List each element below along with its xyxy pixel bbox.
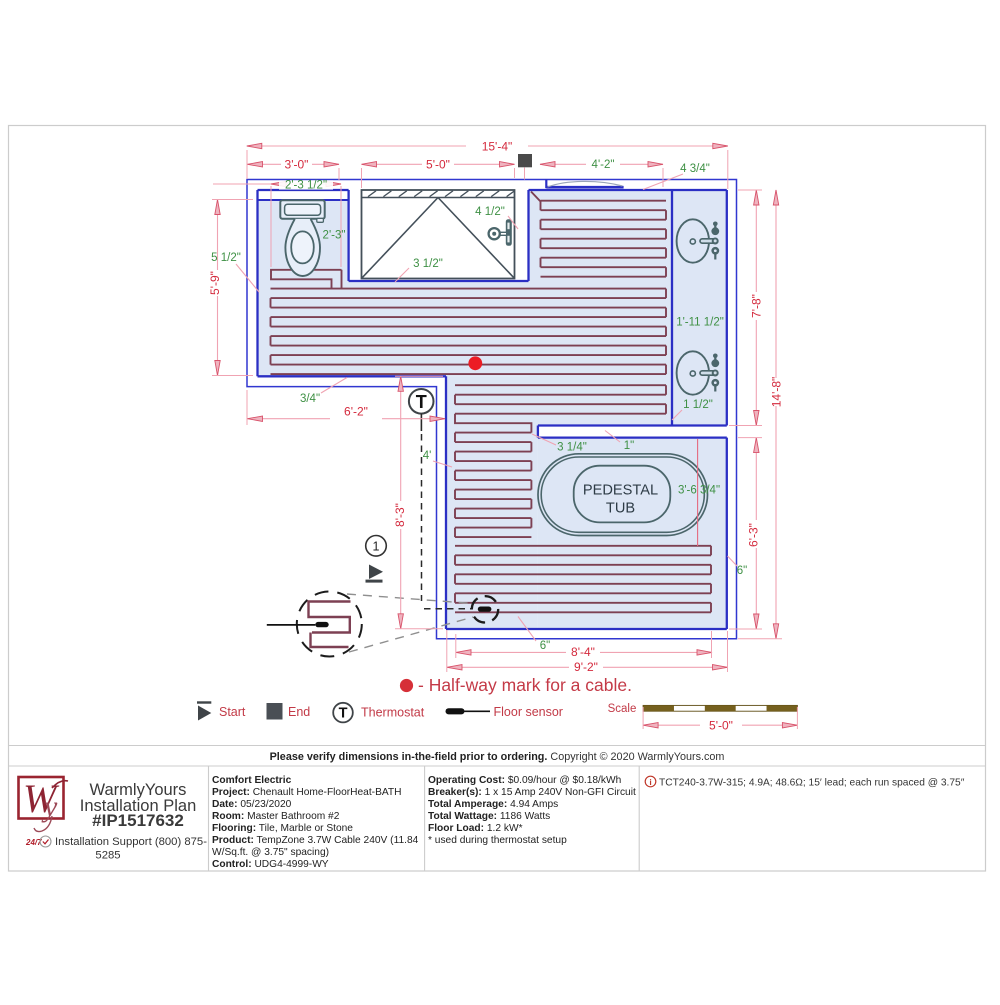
svg-text:3 1/2": 3 1/2" [413,258,443,270]
svg-text:1: 1 [373,540,380,554]
svg-text:6": 6" [540,640,550,652]
svg-text:5'-0": 5'-0" [426,157,450,171]
svg-text:Floor sensor: Floor sensor [494,705,563,719]
svg-text:3 1/4": 3 1/4" [557,442,587,454]
svg-text:W/Sq.ft. @ 3.75" spacing): W/Sq.ft. @ 3.75" spacing) [212,847,329,858]
svg-text:Control: UDG4-4999-WY: Control: UDG4-4999-WY [212,859,329,870]
svg-text:8'-3": 8'-3" [393,503,407,527]
svg-text:1": 1" [624,440,634,452]
svg-text:Total Wattage: 1186 Watts: Total Wattage: 1186 Watts [428,811,550,822]
svg-text:6'-2": 6'-2" [344,405,368,419]
svg-text:Operating Cost: $0.09/hour @ $: Operating Cost: $0.09/hour @ $0.18/kWh [428,775,621,786]
svg-text:4 1/2": 4 1/2" [475,206,505,218]
svg-text:Flooring: Tile, Marble or Ston: Flooring: Tile, Marble or Stone [212,823,353,834]
svg-text:Please verify dimensions in-th: Please verify dimensions in-the-field pr… [270,751,725,763]
svg-text:5 1/2": 5 1/2" [211,252,241,264]
svg-text:Installation Support (800) 875: Installation Support (800) 875- [55,836,207,848]
svg-text:End: End [288,705,310,719]
svg-text:5'-0": 5'-0" [709,719,733,733]
svg-text:- Half-way mark for a cable.: - Half-way mark for a cable. [418,675,632,695]
svg-text:8'-4": 8'-4" [571,645,595,659]
svg-text:Project: Chenault Home-FloorHe: Project: Chenault Home-FloorHeat-BATH [212,787,401,798]
svg-text:Total Amperage: 4.94 Amps: Total Amperage: 4.94 Amps [428,799,558,810]
svg-text:6": 6" [737,565,747,577]
svg-text:6'-3": 6'-3" [747,523,761,547]
svg-text:2'-3": 2'-3" [323,230,346,242]
svg-text:2'-3 1/2": 2'-3 1/2" [285,180,327,192]
svg-text:Comfort Electric: Comfort Electric [212,775,292,786]
svg-text:Room: Master Bathroom #2: Room: Master Bathroom #2 [212,811,340,822]
svg-text:3/4": 3/4" [300,393,320,405]
svg-text:4'-2": 4'-2" [592,159,615,171]
svg-text:Start: Start [219,705,246,719]
svg-text:i: i [649,777,651,787]
svg-text:3'-0": 3'-0" [285,157,309,171]
svg-text:9'-2": 9'-2" [574,660,598,674]
svg-text:T: T [339,706,348,722]
svg-text:1'-11 1/2": 1'-11 1/2" [676,317,724,329]
svg-text:3'-6 3/4": 3'-6 3/4" [678,485,720,497]
svg-text:4 3/4": 4 3/4" [680,163,710,175]
svg-text:TUB: TUB [606,501,635,517]
svg-text:15'-4": 15'-4" [482,140,513,154]
svg-text:TCT240-3.7W-315; 4.9A; 48.6Ω;: TCT240-3.7W-315; 4.9A; 48.6Ω; 15′ lead; … [659,778,965,789]
svg-text:y: y [41,790,58,823]
svg-text:5'-9": 5'-9" [208,271,222,295]
svg-text:PEDESTAL: PEDESTAL [583,483,658,499]
svg-text:Scale: Scale [608,703,637,715]
svg-text:5285: 5285 [95,850,120,862]
svg-text:Thermostat: Thermostat [361,706,425,720]
svg-text:4': 4' [423,450,432,462]
svg-text:#IP1517632: #IP1517632 [92,811,184,830]
svg-text:Date: 05/23/2020: Date: 05/23/2020 [212,799,292,810]
svg-text:Breaker(s): 1 x 15 Amp 240V No: Breaker(s): 1 x 15 Amp 240V Non-GFI Circ… [428,787,636,798]
svg-text:Product: TempZone 3.7W Cable 2: Product: TempZone 3.7W Cable 240V (11.84 [212,835,419,846]
svg-text:Floor Load: 1.2 kW*: Floor Load: 1.2 kW* [428,823,523,834]
svg-text:T: T [416,392,427,412]
svg-text:1 1/2": 1 1/2" [683,399,713,411]
svg-text:* used during thermostat setup: * used during thermostat setup [428,835,567,846]
svg-text:14'-8": 14'-8" [770,377,784,408]
svg-text:7'-8": 7'-8" [750,294,764,318]
